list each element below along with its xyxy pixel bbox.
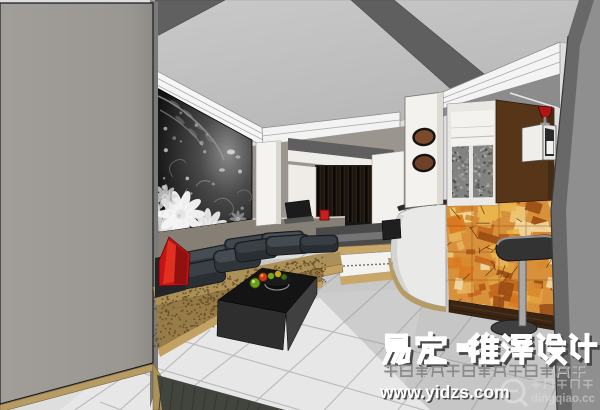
svg-text:www.yidzs.com: www.yidzs.com [379, 382, 510, 402]
svg-text:dingqiao.cc: dingqiao.cc [531, 393, 596, 405]
